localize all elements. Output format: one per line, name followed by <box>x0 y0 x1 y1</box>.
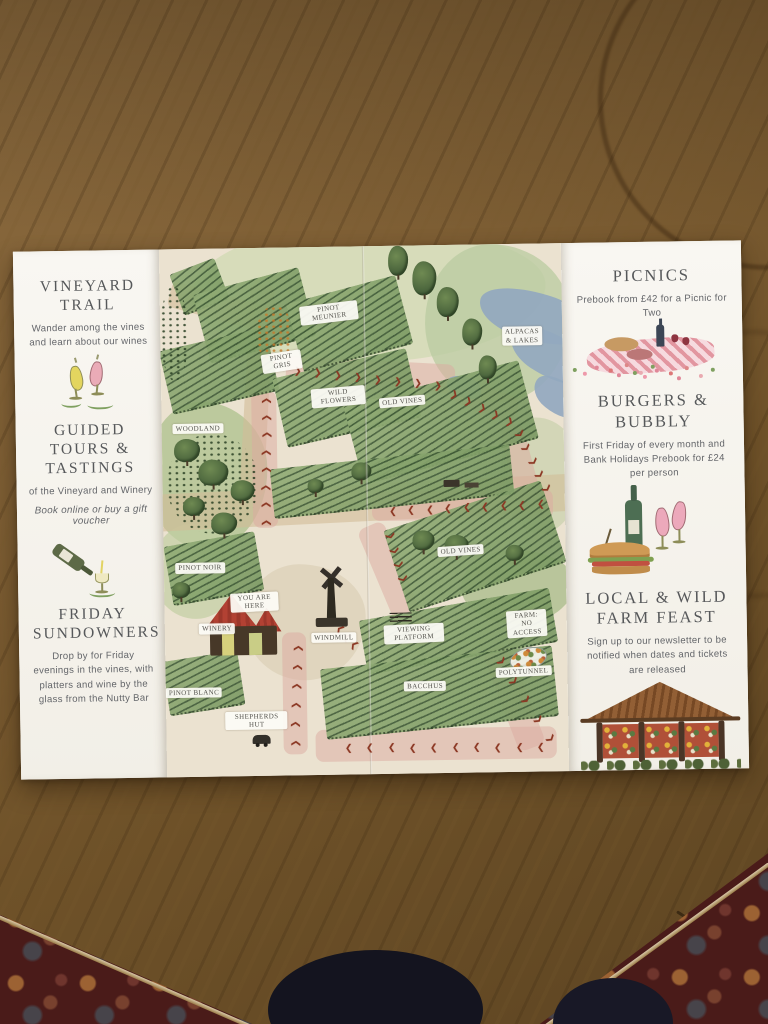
trail-arrow: ❯ <box>426 504 434 515</box>
trail-arrow: ❯ <box>345 743 353 754</box>
photo-scene: VINEYARD TRAIL Wander among the vines an… <box>0 0 768 1024</box>
trail-arrow: ❯ <box>494 742 502 753</box>
burger-bubbly-icon <box>577 484 734 578</box>
map-label-pinot-noir: PINOT NOIR <box>175 563 225 574</box>
section-title-vineyard-trail: VINEYARD TRAIL <box>31 276 144 317</box>
trail-arrow: ❯ <box>261 396 272 404</box>
trail-arrow: ❯ <box>473 742 481 753</box>
trail-arrow: ❯ <box>290 740 301 748</box>
vineyard-map: PINOT MEUNIERPINOT GRISWILD FLOWERSOLD V… <box>159 243 569 777</box>
tree <box>462 318 482 345</box>
section-title-burgers-bubbly: BURGERS & BUBBLY <box>593 390 714 433</box>
vineyard-trail-brochure: VINEYARD TRAIL Wander among the vines an… <box>13 240 749 779</box>
trail-arrow: ❯ <box>409 743 417 754</box>
trail-arrow: ❯ <box>291 683 302 691</box>
map-label-bacchus: BACCHUS <box>404 681 446 692</box>
trail-arrow: ❯ <box>430 743 438 754</box>
trail-arrow: ❯ <box>389 506 397 517</box>
guided-tours-note: Book online or buy a gift voucher <box>29 504 153 528</box>
picnic-icon <box>574 324 731 382</box>
feast-barn-icon <box>580 681 741 780</box>
burgers-bubbly-text: First Friday of every month and Bank Hol… <box>576 437 733 483</box>
map-label-woodland: WOODLAND <box>173 423 224 434</box>
vineyard-block-pinot-blanc <box>162 650 246 716</box>
map-label-windmill: WINDMILL <box>311 632 357 643</box>
trail-arrow: ❯ <box>260 484 271 492</box>
trail-arrow: ❯ <box>260 518 271 526</box>
trail-arrow: ❯ <box>518 500 526 511</box>
map-label-alpacas-lakes: ALPACAS & LAKES <box>502 326 542 345</box>
right-panel: PICNICS Prebook from £42 for a Picnic fo… <box>561 240 749 771</box>
vineyard-trail-text: Wander among the vines and learn about o… <box>26 320 150 351</box>
trail-arrow: ❯ <box>500 501 508 512</box>
trail-arrow: ❯ <box>313 368 321 380</box>
farm-buildings <box>444 480 460 487</box>
shepherds-hut-structure <box>253 735 271 744</box>
map-label-shepherds-hut: SHEPHERDS HUT <box>226 711 288 731</box>
left-panel: VINEYARD TRAIL Wander among the vines an… <box>13 249 167 779</box>
trail-arrow: ❯ <box>537 499 545 510</box>
farm-feast-text: Sign up to our newsletter to be notified… <box>579 634 736 680</box>
map-label-winery: WINERY <box>199 623 235 634</box>
trail-arrow: ❯ <box>260 466 271 474</box>
trail-arrow: ❯ <box>408 505 416 516</box>
trail-arrow: ❯ <box>291 702 302 710</box>
friday-sundowners-text: Drop by for Friday evenings in the vines… <box>31 648 156 708</box>
trail-arrow: ❯ <box>388 743 396 754</box>
trail-arrow: ❯ <box>292 664 303 672</box>
map-label-farm-no-access: FARM: NO ACCESS <box>506 609 548 639</box>
trail-arrow: ❯ <box>463 503 471 514</box>
trail-arrow: ❯ <box>515 742 523 753</box>
trail-arrow: ❯ <box>394 376 402 388</box>
trail-arrow: ❯ <box>261 449 272 457</box>
map-label-you-are-here: YOU ARE HERE <box>230 591 279 612</box>
section-title-picnics: PICNICS <box>573 265 729 288</box>
windmill-structure <box>311 566 352 630</box>
viewing-platform-structure <box>390 612 412 621</box>
guided-tours-text: of the Vineyard and Winery <box>29 483 153 499</box>
tree <box>505 545 523 561</box>
map-label-viewing-platform: VIEWING PLATFORM <box>384 623 445 645</box>
trail-arrow: ❯ <box>261 414 272 422</box>
trail-arrow: ❯ <box>334 370 342 382</box>
trail-arrow: ❯ <box>260 501 271 509</box>
section-title-guided-tours: GUIDED TOURS & TASTINGS <box>34 419 147 479</box>
trail-arrow: ❯ <box>434 380 442 392</box>
trail-arrow: ❯ <box>414 378 422 390</box>
trail-arrow: ❯ <box>290 721 301 729</box>
tree <box>478 355 496 379</box>
tree <box>172 582 190 598</box>
trail-arrow: ❯ <box>292 645 303 653</box>
trail-arrow: ❯ <box>366 743 374 754</box>
trail-arrow: ❯ <box>354 372 362 384</box>
trail-arrow: ❯ <box>537 742 545 753</box>
section-title-friday-sundowners: FRIDAY SUNDOWNERS <box>32 604 153 645</box>
wine-pour-icon <box>54 530 129 595</box>
trail-arrow: ❯ <box>445 503 453 514</box>
trail-arrow: ❯ <box>261 431 272 439</box>
trail-arrow: ❯ <box>452 742 460 753</box>
section-title-farm-feast: LOCAL & WILD FARM FEAST <box>581 586 732 630</box>
picnics-text: Prebook from £42 for a Picnic for Two <box>574 291 730 322</box>
trail-arrow: ❯ <box>482 502 490 513</box>
trail-arrow: ❯ <box>374 374 382 386</box>
champagne-glasses-icon <box>57 354 122 411</box>
map-label-pinot-blanc: PINOT BLANC <box>166 687 223 698</box>
